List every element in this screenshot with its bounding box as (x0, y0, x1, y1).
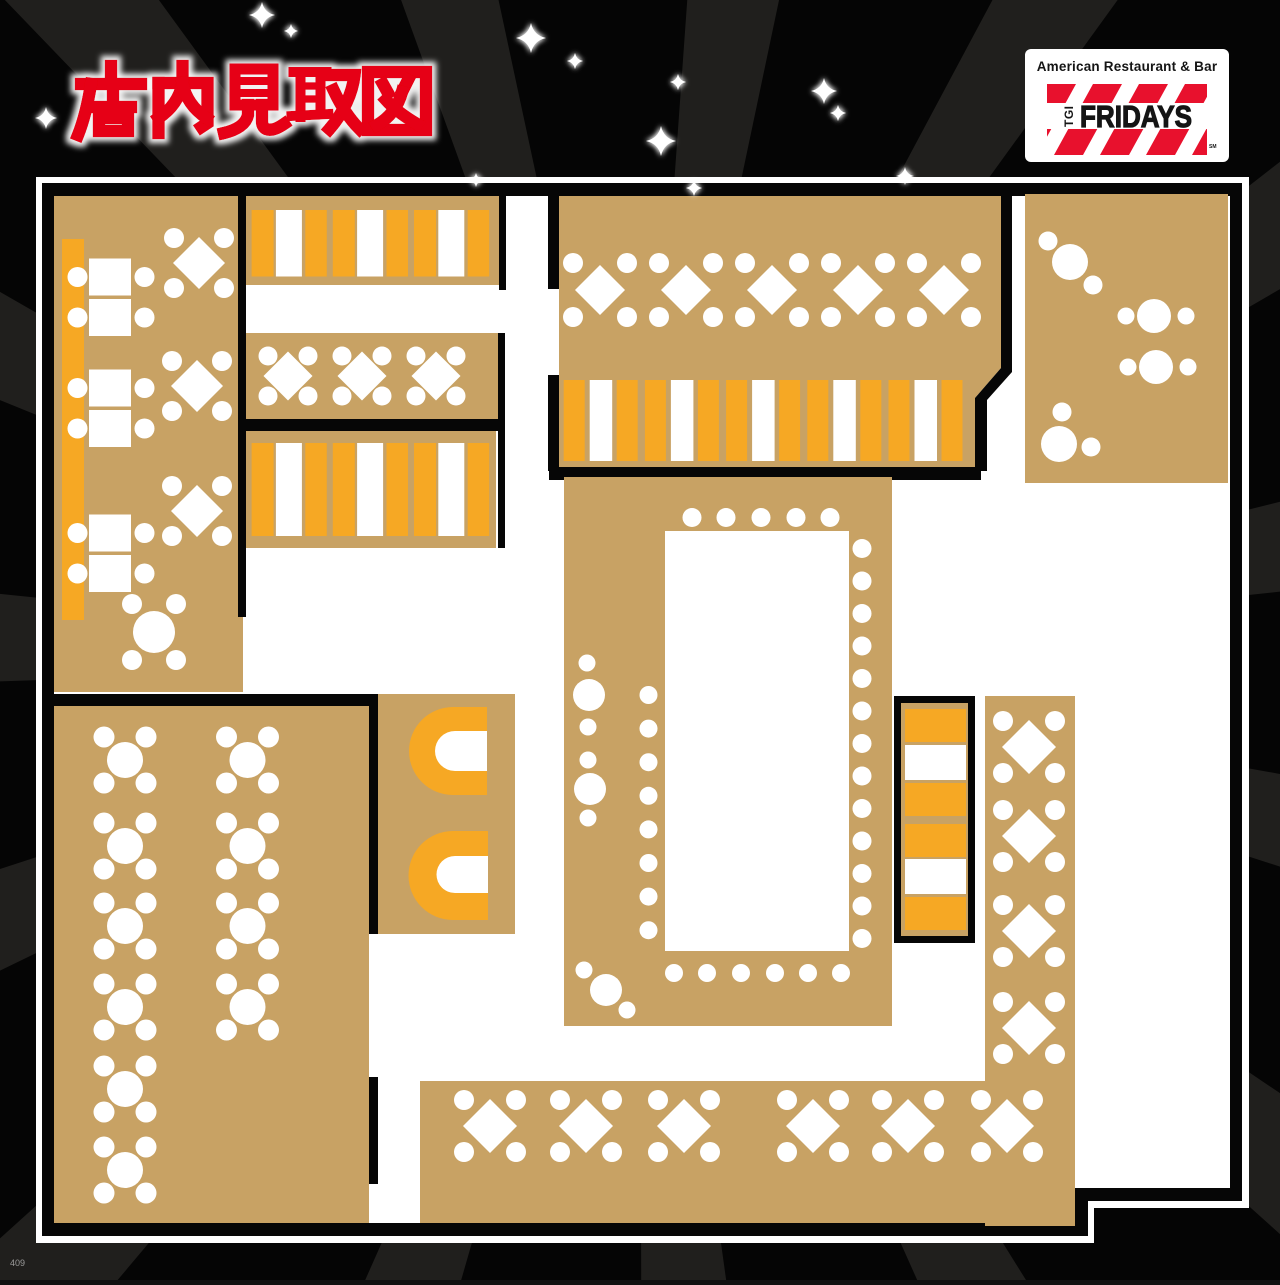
svg-text:TGI: TGI (1062, 106, 1076, 128)
svg-text:FRIDAYS: FRIDAYS (1080, 99, 1192, 134)
svg-text:409: 409 (10, 1258, 25, 1268)
svg-text:SM: SM (1209, 144, 1217, 150)
svg-text:American Restaurant & Bar: American Restaurant & Bar (1037, 59, 1218, 74)
